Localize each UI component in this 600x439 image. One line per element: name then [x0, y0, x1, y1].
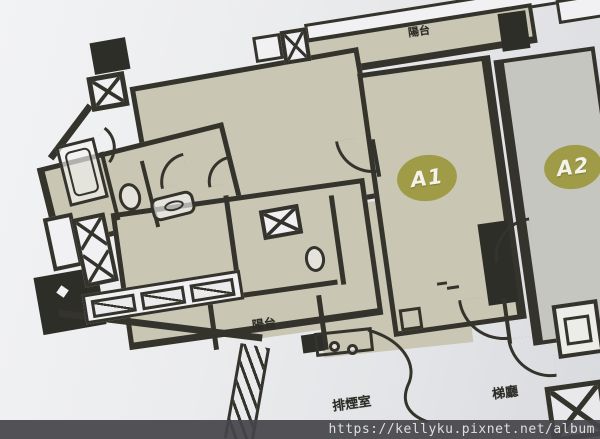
watermark-bar: https://kellyku.pixnet.net/album	[0, 420, 600, 439]
wall-block-topleft	[89, 37, 130, 75]
ac-louver-3	[189, 278, 235, 303]
parapet-corner-box	[555, 0, 600, 24]
x-mark-icon	[92, 77, 124, 106]
x-mark-icon	[284, 32, 307, 61]
wall-niche	[399, 307, 424, 332]
balcony-inner-label: 陽台	[251, 313, 277, 333]
floorplan-photo: 陽台 陽台 排煙室 梯廳 A1 A2 https://kellyku.pixne…	[0, 0, 600, 439]
stove-burner-1	[329, 341, 340, 352]
door-arc-lift-lobby	[507, 333, 557, 383]
x-mark-icon	[263, 208, 298, 235]
balcony-top-label: 陽台	[407, 22, 431, 41]
vent-shaft-topmid	[280, 27, 312, 65]
stove-burner-2	[347, 344, 358, 355]
sink-basin	[163, 198, 185, 213]
ac-louver-2	[140, 286, 186, 311]
bathtub-inner	[64, 147, 100, 198]
machine-shaft-inner	[563, 314, 593, 345]
lobby-curved-wall	[363, 330, 433, 425]
vent-box	[252, 33, 284, 63]
vent-shaft-topleft	[86, 71, 130, 112]
lift-lobby-label: 梯廳	[491, 380, 519, 402]
wall-block-a1a2-top	[497, 10, 530, 52]
watermark-url: https://kellyku.pixnet.net/album	[329, 422, 600, 437]
ac-louver-1	[91, 293, 137, 318]
